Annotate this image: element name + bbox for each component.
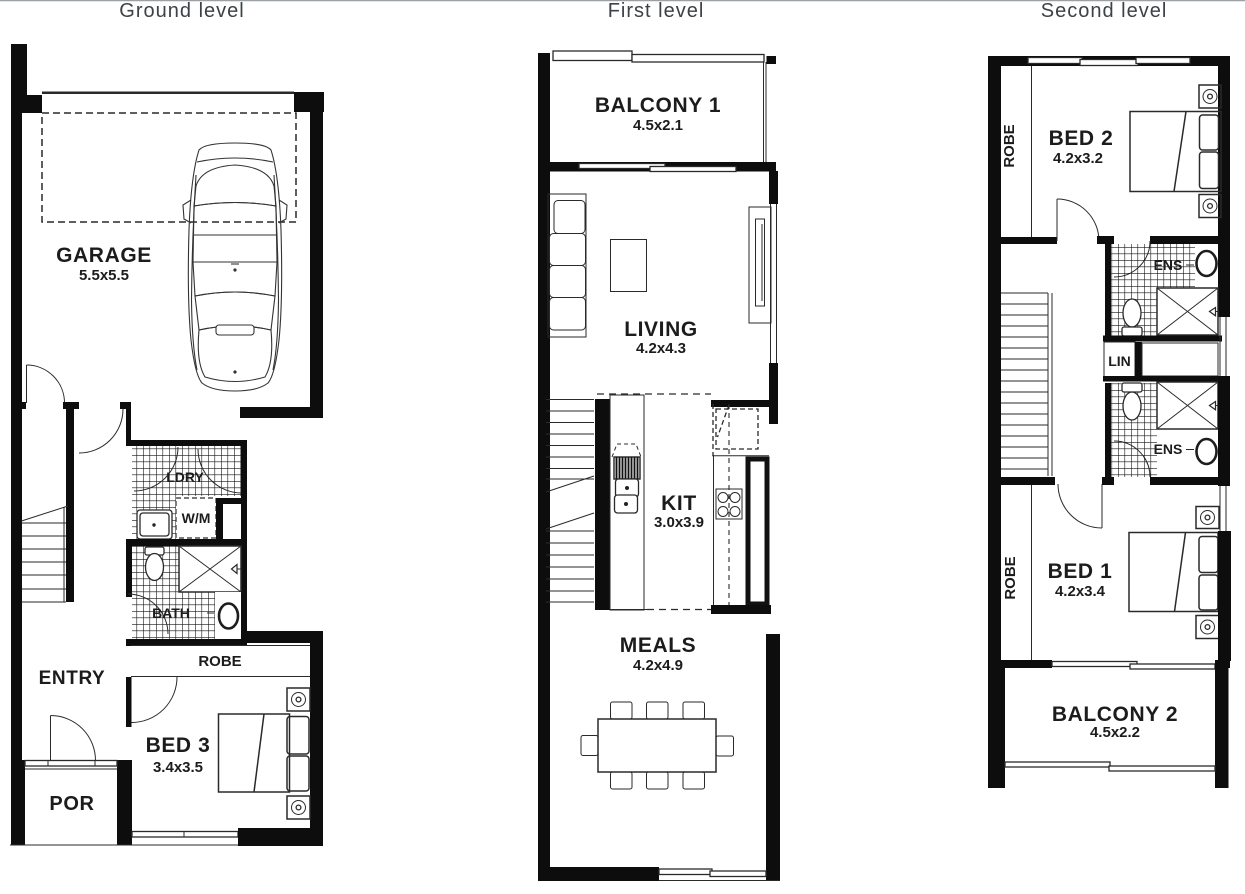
- svg-text:BED 3: BED 3: [146, 734, 211, 757]
- svg-text:LDRY: LDRY: [166, 469, 204, 485]
- svg-text:ENS: ENS: [1154, 257, 1183, 273]
- svg-text:ROBE: ROBE: [1001, 124, 1018, 167]
- svg-text:3.0x3.9: 3.0x3.9: [654, 514, 704, 531]
- svg-text:5.5x5.5: 5.5x5.5: [79, 267, 129, 284]
- svg-text:ROBE: ROBE: [1002, 556, 1019, 599]
- svg-text:4.2x4.3: 4.2x4.3: [636, 340, 686, 357]
- svg-text:BALCONY 2: BALCONY 2: [1052, 703, 1178, 726]
- svg-text:BED 2: BED 2: [1049, 127, 1114, 150]
- svg-text:Second level: Second level: [1041, 0, 1168, 22]
- svg-text:KIT: KIT: [661, 492, 697, 515]
- svg-text:BED 1: BED 1: [1048, 560, 1113, 583]
- svg-text:LIVING: LIVING: [624, 318, 698, 341]
- svg-text:W/M: W/M: [182, 510, 211, 526]
- svg-text:4.5x2.2: 4.5x2.2: [1090, 724, 1140, 741]
- svg-text:LIN: LIN: [1108, 353, 1131, 369]
- svg-text:ENTRY: ENTRY: [39, 668, 106, 689]
- svg-text:BALCONY 1: BALCONY 1: [595, 94, 721, 117]
- svg-text:GARAGE: GARAGE: [56, 244, 152, 267]
- svg-text:ROBE: ROBE: [198, 653, 241, 670]
- svg-text:ENS: ENS: [1154, 441, 1183, 457]
- svg-text:4.5x2.1: 4.5x2.1: [633, 117, 683, 134]
- svg-text:POR: POR: [49, 793, 94, 815]
- svg-text:4.2x3.2: 4.2x3.2: [1053, 150, 1103, 167]
- svg-text:MEALS: MEALS: [620, 634, 697, 657]
- svg-text:4.2x3.4: 4.2x3.4: [1055, 583, 1106, 600]
- svg-text:BATH: BATH: [152, 605, 190, 621]
- svg-text:First level: First level: [608, 0, 705, 22]
- svg-text:Ground level: Ground level: [119, 0, 244, 22]
- svg-text:4.2x4.9: 4.2x4.9: [633, 657, 683, 674]
- svg-text:3.4x3.5: 3.4x3.5: [153, 759, 203, 776]
